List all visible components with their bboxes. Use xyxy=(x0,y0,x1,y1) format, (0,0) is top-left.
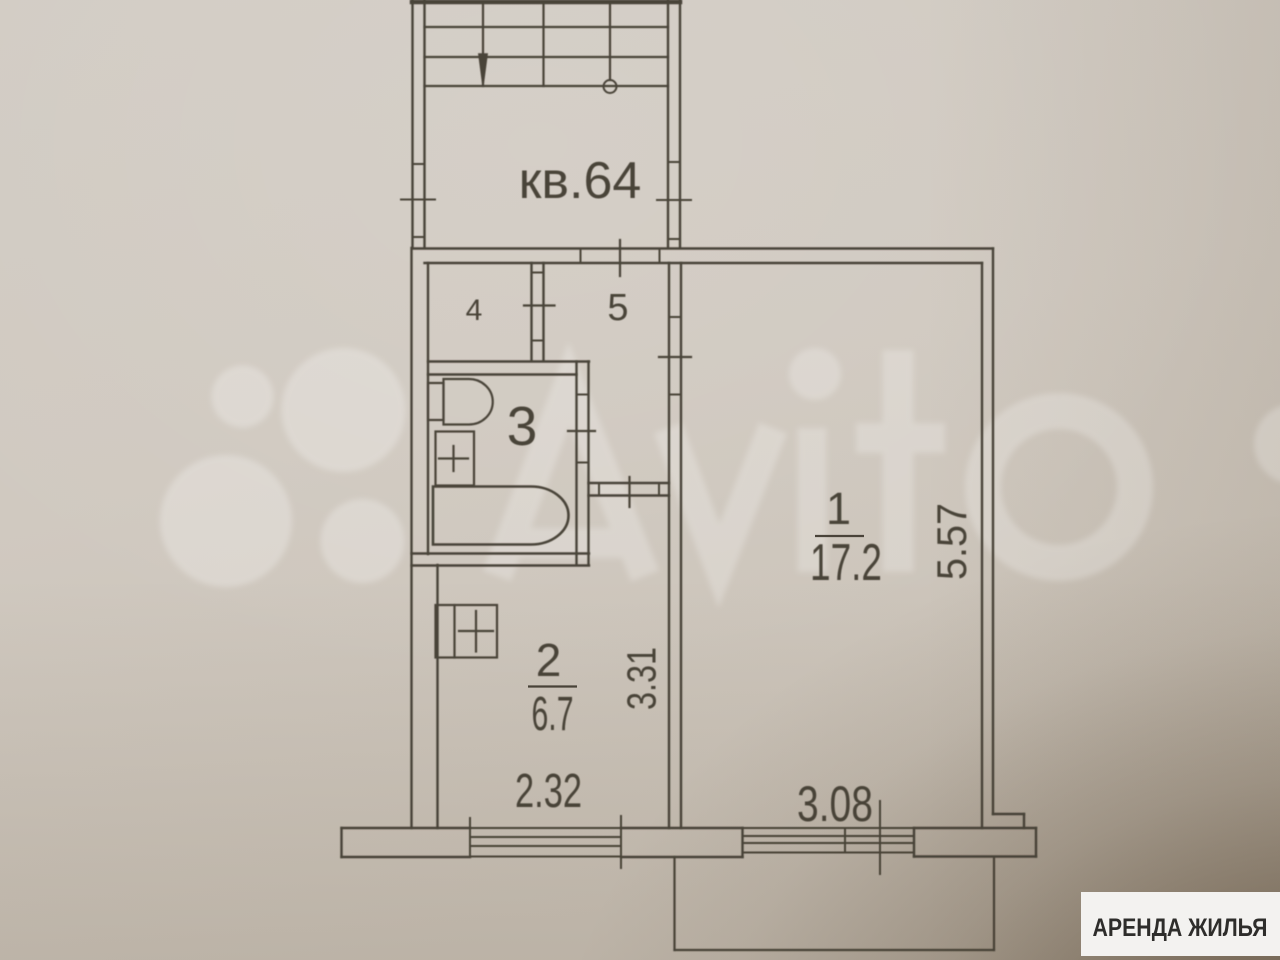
svg-text:3.08: 3.08 xyxy=(797,776,873,832)
svg-text:2.32: 2.32 xyxy=(515,765,582,818)
svg-text:кв.64: кв.64 xyxy=(519,152,642,210)
svg-text:4: 4 xyxy=(466,294,483,327)
svg-text:3.31: 3.31 xyxy=(619,647,665,710)
svg-text:АРЕНДА ЖИЛЬЯ: АРЕНДА ЖИЛЬЯ xyxy=(1093,914,1268,942)
svg-text:3: 3 xyxy=(507,395,538,457)
svg-text:6.7: 6.7 xyxy=(532,688,574,741)
svg-text:5: 5 xyxy=(607,287,628,329)
svg-text:17.2: 17.2 xyxy=(810,534,882,592)
svg-text:1: 1 xyxy=(826,483,851,534)
svg-text:5.57: 5.57 xyxy=(928,503,975,580)
svg-text:2: 2 xyxy=(536,634,562,686)
